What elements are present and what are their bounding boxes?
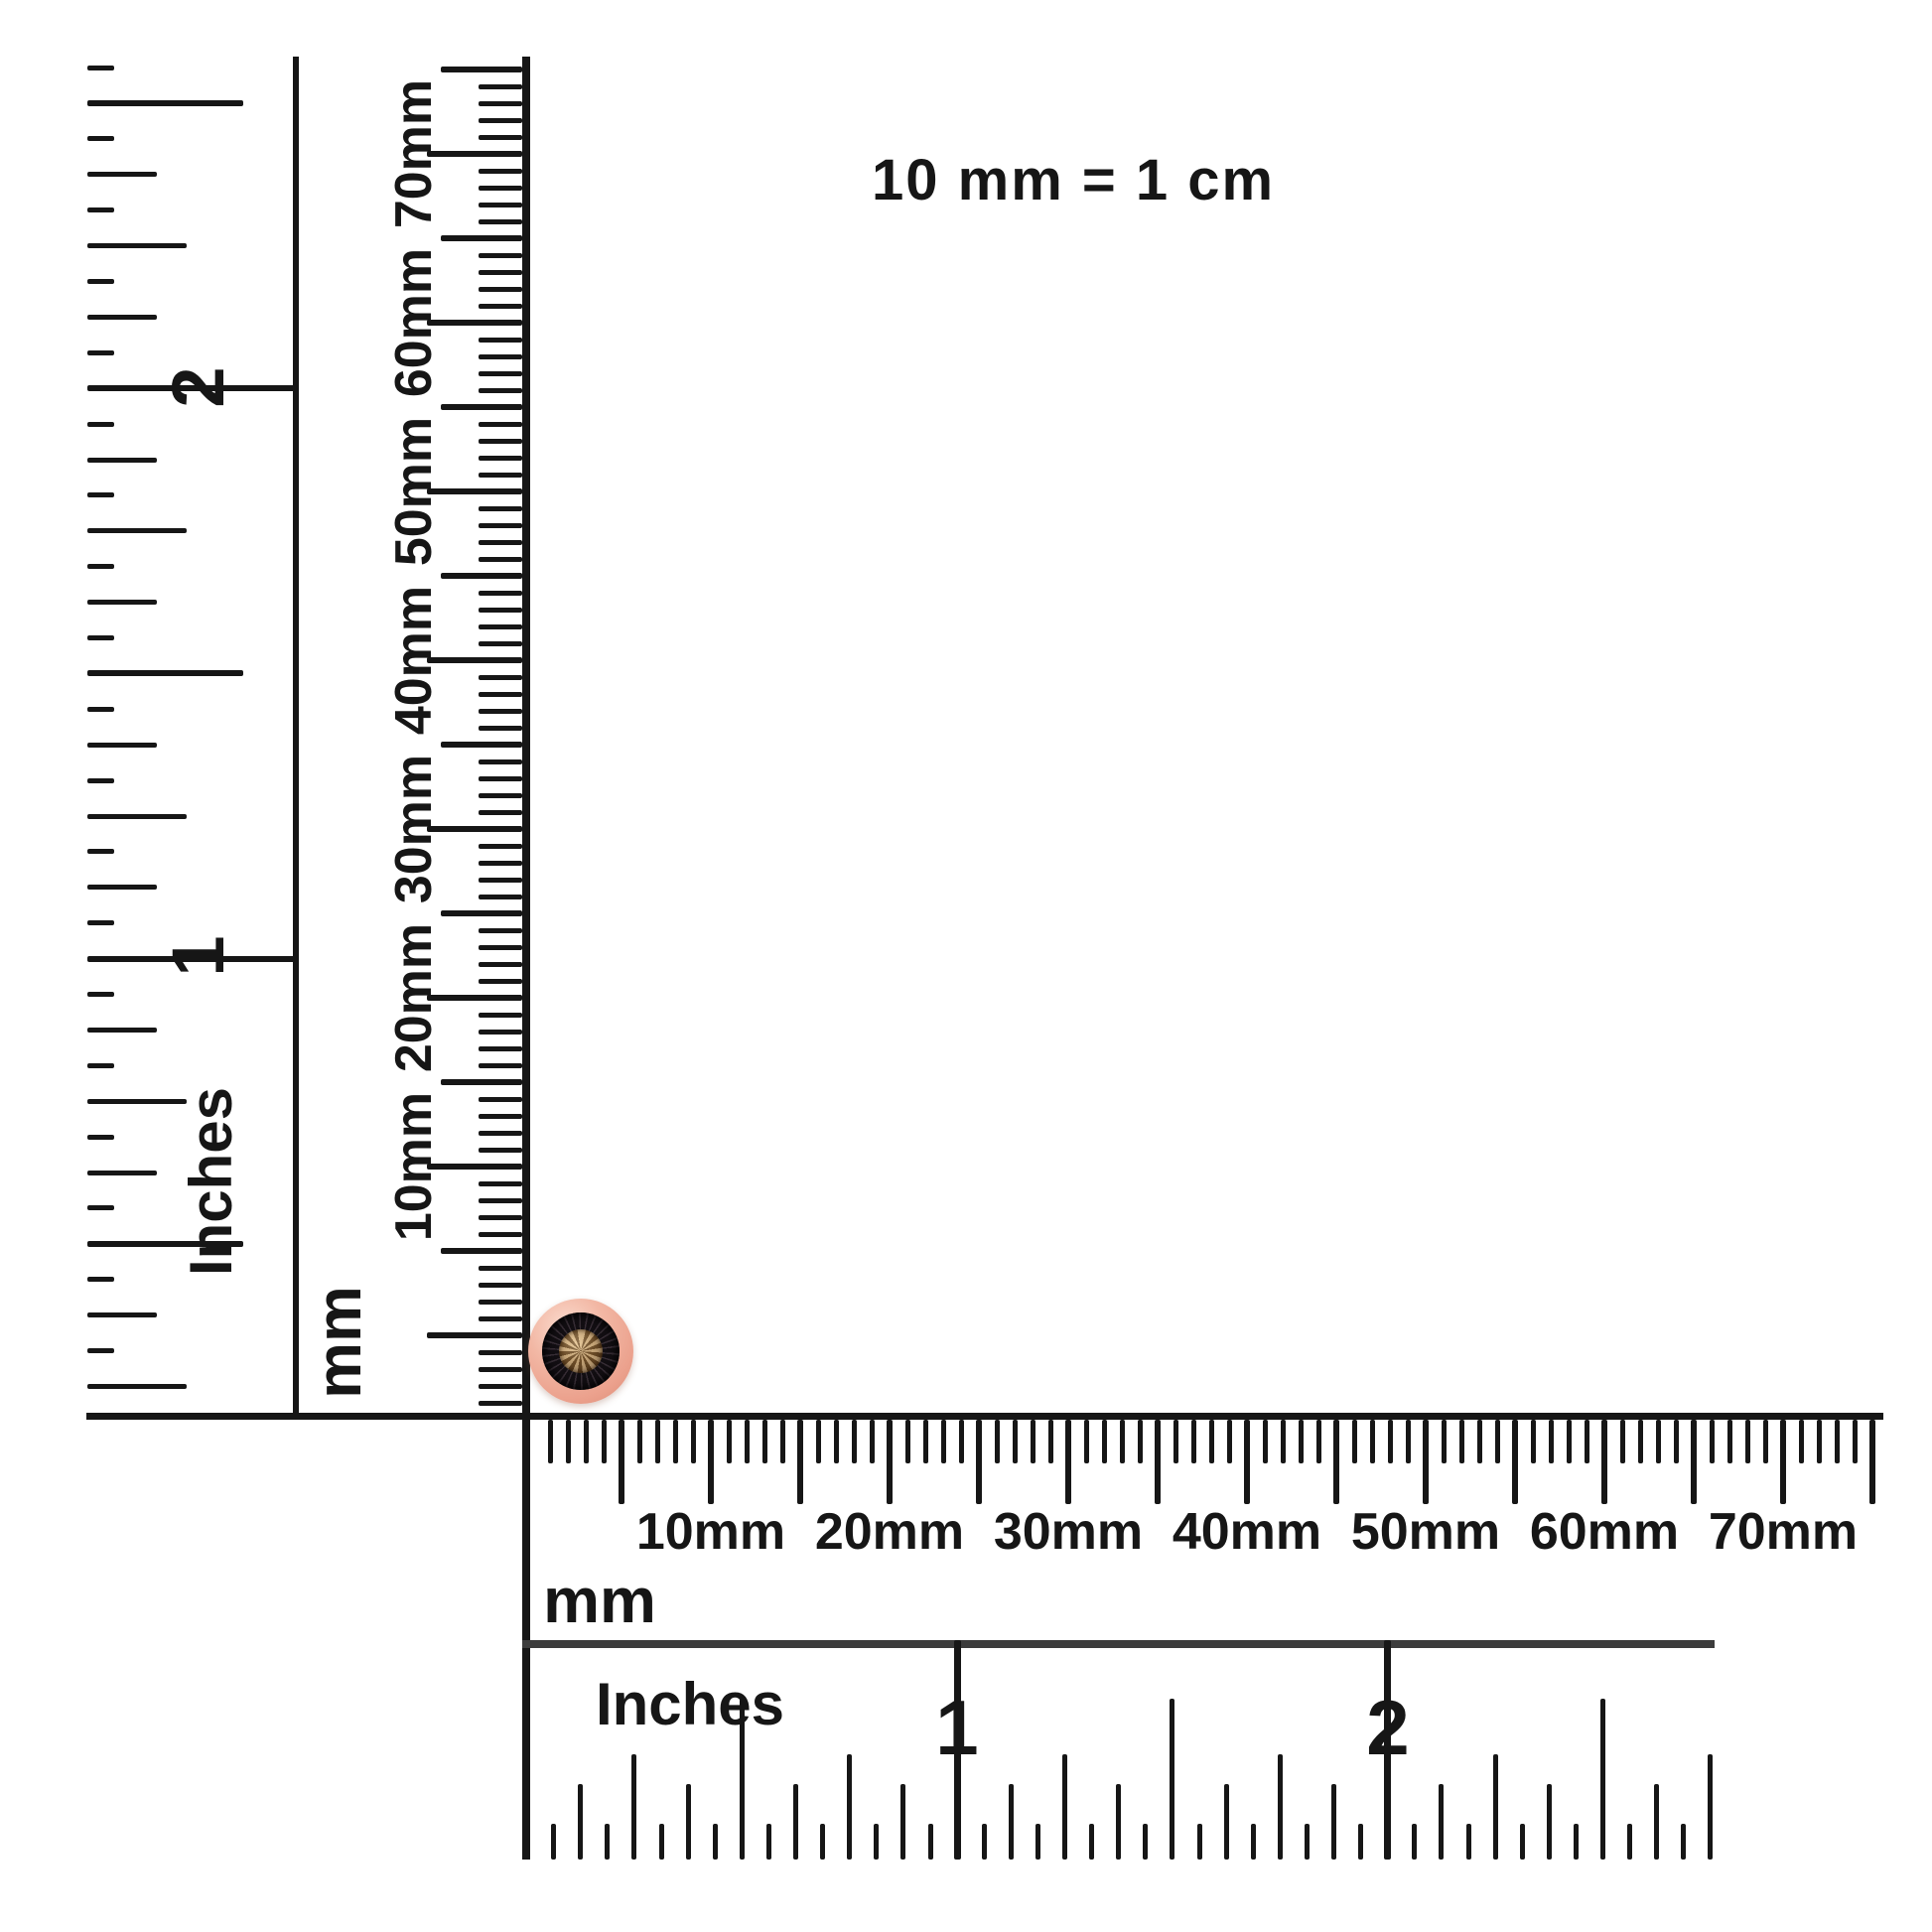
corner-baseline <box>86 1413 1883 1420</box>
tick <box>905 1420 910 1463</box>
tick <box>87 849 114 854</box>
tick <box>479 169 522 174</box>
tick <box>87 243 187 248</box>
tick <box>479 287 522 292</box>
tick <box>87 1384 187 1389</box>
tick <box>762 1420 767 1463</box>
tick <box>602 1420 607 1463</box>
tick <box>834 1420 839 1463</box>
tick <box>479 304 522 309</box>
tick <box>793 1784 798 1860</box>
tick <box>87 207 114 212</box>
tick <box>87 1277 114 1282</box>
tick <box>1013 1420 1018 1463</box>
tick <box>87 1063 114 1068</box>
tick <box>1406 1420 1411 1463</box>
tick <box>1708 1754 1713 1860</box>
tick <box>1585 1420 1589 1463</box>
tick <box>87 492 114 497</box>
tick <box>87 279 114 284</box>
tick <box>1065 1420 1071 1504</box>
tick <box>655 1420 660 1463</box>
tick <box>1466 1824 1471 1860</box>
tick <box>820 1824 825 1860</box>
tick <box>1520 1824 1525 1860</box>
tick <box>1817 1420 1822 1463</box>
tick <box>1439 1784 1444 1860</box>
tick <box>441 235 522 241</box>
tick <box>1412 1824 1417 1860</box>
tick <box>1710 1420 1715 1463</box>
tick <box>1263 1420 1268 1463</box>
tick <box>1102 1420 1107 1463</box>
tick <box>87 528 187 533</box>
tick <box>1727 1420 1732 1463</box>
tick <box>551 1824 556 1860</box>
tick <box>995 1420 1000 1463</box>
tick <box>1048 1420 1053 1463</box>
left-mm-major-label: 40mm <box>388 586 440 735</box>
tick <box>441 67 522 72</box>
tick <box>1654 1784 1659 1860</box>
tick <box>87 1028 157 1033</box>
tick <box>479 371 522 376</box>
tick <box>479 506 522 511</box>
left-mm-major-label: 30mm <box>388 755 440 903</box>
scale-note-text: 10 mm = 1 cm <box>872 147 1275 213</box>
tick <box>479 1131 522 1136</box>
tick <box>87 600 157 605</box>
tick <box>847 1754 852 1860</box>
tick <box>1227 1420 1232 1463</box>
tick <box>479 523 522 528</box>
tick <box>479 1114 522 1119</box>
tick <box>479 186 522 191</box>
tick <box>982 1824 987 1860</box>
tick <box>87 315 157 320</box>
tick <box>780 1420 785 1463</box>
left-mm-unit-label: mm <box>307 1286 370 1399</box>
tick <box>1244 1420 1250 1504</box>
tick <box>1691 1420 1697 1504</box>
tick <box>479 591 522 596</box>
champagne-diamond <box>559 1329 603 1373</box>
tick <box>479 793 522 798</box>
tick <box>1331 1784 1336 1860</box>
tick <box>887 1420 893 1504</box>
tick <box>1352 1420 1357 1463</box>
tick <box>479 624 522 629</box>
tick <box>87 885 157 890</box>
tick <box>479 861 522 866</box>
tick <box>479 219 522 224</box>
tick <box>1316 1420 1321 1463</box>
left-inches-major-label: 1 <box>162 935 235 976</box>
tick <box>1442 1420 1447 1463</box>
tick <box>87 66 114 70</box>
tick <box>441 742 522 748</box>
tick <box>566 1420 571 1463</box>
left-mm-major-label: 10mm <box>388 1092 440 1241</box>
tick <box>874 1824 879 1860</box>
tick <box>548 1420 553 1463</box>
tick <box>479 270 522 275</box>
tick <box>479 962 522 967</box>
tick <box>479 1384 522 1389</box>
tick <box>87 100 243 106</box>
tick <box>1197 1824 1202 1860</box>
tick <box>87 814 187 819</box>
tick <box>659 1824 664 1860</box>
tick <box>686 1784 691 1860</box>
tick <box>479 1046 522 1051</box>
tick <box>479 1401 522 1406</box>
tick <box>479 675 522 680</box>
tick <box>727 1420 732 1463</box>
tick <box>87 1312 157 1317</box>
tick <box>479 1215 522 1220</box>
tick <box>479 1350 522 1355</box>
tick <box>427 1332 522 1338</box>
tick <box>1120 1420 1125 1463</box>
tick <box>1423 1420 1429 1504</box>
bottom-mm-major-label: 60mm <box>1530 1506 1679 1558</box>
tick <box>1638 1420 1643 1463</box>
tick <box>870 1420 875 1463</box>
tick <box>637 1420 642 1463</box>
tick <box>479 641 522 646</box>
tick <box>1869 1420 1875 1504</box>
tick <box>1370 1420 1375 1463</box>
tick <box>691 1420 696 1463</box>
tick <box>1531 1420 1536 1463</box>
vertical-mm-ruler-edge-line <box>522 57 530 1860</box>
tick <box>479 810 522 815</box>
tick <box>1170 1699 1174 1860</box>
tick <box>1143 1824 1148 1860</box>
tick <box>959 1420 964 1463</box>
tick <box>87 670 243 676</box>
tick <box>1567 1420 1572 1463</box>
tick <box>479 1063 522 1068</box>
bottom-inches-major-label: 2 <box>1366 1689 1409 1766</box>
bottom-inches-unit-label: Inches <box>596 1675 784 1734</box>
tick <box>479 945 522 950</box>
tick <box>479 203 522 207</box>
tick <box>1035 1824 1040 1860</box>
tick <box>479 608 522 613</box>
tick <box>584 1420 589 1463</box>
tick <box>87 743 157 748</box>
tick <box>479 759 522 764</box>
tick <box>87 1099 187 1104</box>
tick <box>1388 1420 1393 1463</box>
tick <box>479 1367 522 1372</box>
tick <box>1674 1420 1679 1463</box>
tick <box>87 920 114 925</box>
bottom-mm-major-label: 70mm <box>1709 1506 1858 1558</box>
left-mm-major-label: 70mm <box>388 79 440 228</box>
tick <box>441 1248 522 1254</box>
tick <box>479 1013 522 1018</box>
tick <box>1656 1420 1661 1463</box>
tick <box>479 709 522 714</box>
tick <box>479 253 522 258</box>
tick <box>1089 1824 1094 1860</box>
tick <box>1009 1784 1014 1860</box>
bottom-inches-ruler-top-line <box>522 1640 1715 1648</box>
tick <box>479 422 522 427</box>
tick <box>441 404 522 410</box>
tick <box>1512 1420 1518 1504</box>
tick <box>941 1420 946 1463</box>
tick <box>1763 1420 1768 1463</box>
tick <box>87 992 114 997</box>
tick <box>900 1784 905 1860</box>
tick <box>87 458 157 463</box>
tick <box>816 1420 821 1463</box>
tick <box>976 1420 982 1504</box>
tick <box>797 1420 803 1504</box>
tick <box>1224 1784 1229 1860</box>
tick <box>631 1754 636 1860</box>
tick <box>1799 1420 1804 1463</box>
tick <box>1780 1420 1786 1504</box>
tick <box>479 354 522 359</box>
tick <box>479 1148 522 1153</box>
tick <box>1031 1420 1035 1463</box>
tick <box>1495 1420 1500 1463</box>
tick <box>766 1824 771 1860</box>
tick <box>479 557 522 562</box>
tick <box>479 878 522 883</box>
tick <box>87 172 157 177</box>
tick <box>479 1316 522 1321</box>
tick <box>1493 1754 1498 1860</box>
tick <box>1745 1420 1750 1463</box>
tick <box>479 540 522 545</box>
tick <box>852 1420 857 1463</box>
tick <box>479 118 522 123</box>
bottom-mm-major-label: 40mm <box>1173 1506 1321 1558</box>
tick <box>1299 1420 1304 1463</box>
left-inches-major-label: 2 <box>162 366 235 407</box>
tick <box>479 1300 522 1305</box>
bottom-mm-unit-label: mm <box>543 1569 656 1632</box>
bottom-mm-major-label: 10mm <box>636 1506 785 1558</box>
bottom-mm-major-label: 30mm <box>994 1506 1143 1558</box>
tick <box>87 1135 114 1140</box>
bottom-mm-major-label: 50mm <box>1351 1506 1500 1558</box>
tick <box>479 388 522 393</box>
tick <box>441 910 522 916</box>
tick <box>479 1266 522 1271</box>
tick <box>87 350 114 355</box>
tick <box>479 1181 522 1186</box>
tick <box>1062 1754 1067 1860</box>
tick <box>479 895 522 899</box>
left-inches-ruler-edge-line <box>293 57 299 1416</box>
tick <box>1835 1420 1840 1463</box>
measurement-scale-image: 10 mm = 1 cm 21 70mm60mm50mm40mm30mm20mm… <box>0 0 1932 1932</box>
tick <box>1209 1420 1214 1463</box>
left-mm-major-label: 60mm <box>388 248 440 397</box>
tick <box>87 778 114 783</box>
tick <box>1251 1824 1256 1860</box>
tick <box>479 1232 522 1237</box>
left-mm-major-label: 20mm <box>388 923 440 1072</box>
tick <box>1574 1824 1579 1860</box>
tick <box>1116 1784 1121 1860</box>
tick <box>479 979 522 984</box>
tick <box>479 692 522 697</box>
tick <box>1549 1420 1554 1463</box>
tick <box>479 928 522 933</box>
tick <box>87 136 114 141</box>
tick <box>578 1784 583 1860</box>
tick <box>87 707 114 712</box>
left-inches-unit-label: Inches <box>182 1087 241 1276</box>
tick <box>1600 1699 1605 1860</box>
tick <box>479 1283 522 1288</box>
tick <box>479 338 522 343</box>
tick <box>479 726 522 731</box>
tick <box>1138 1420 1143 1463</box>
tick <box>1305 1824 1310 1860</box>
tick <box>708 1420 714 1504</box>
tick <box>673 1420 678 1463</box>
tick <box>1084 1420 1089 1463</box>
tick <box>87 1171 157 1175</box>
tick <box>1333 1420 1339 1504</box>
tick <box>87 422 114 427</box>
tick <box>745 1420 750 1463</box>
tick <box>479 135 522 140</box>
tick <box>1620 1420 1625 1463</box>
tick <box>479 84 522 89</box>
tick <box>1281 1420 1286 1463</box>
tick <box>1173 1420 1178 1463</box>
tick <box>1853 1420 1858 1463</box>
tick <box>1601 1420 1607 1504</box>
left-mm-major-label: 50mm <box>388 417 440 566</box>
tick <box>479 844 522 849</box>
tick <box>479 473 522 478</box>
tick <box>1477 1420 1482 1463</box>
tick <box>1358 1824 1363 1860</box>
tick <box>479 1198 522 1203</box>
tick <box>87 1348 114 1353</box>
tick <box>713 1824 718 1860</box>
tick <box>605 1824 610 1860</box>
tick <box>1459 1420 1464 1463</box>
bottom-inches-major-label: 1 <box>935 1689 978 1766</box>
tick <box>87 635 114 640</box>
tick <box>87 564 114 569</box>
tick <box>87 1205 114 1210</box>
tick <box>479 456 522 461</box>
tick <box>479 439 522 444</box>
tick <box>479 1097 522 1102</box>
tick <box>1681 1824 1686 1860</box>
tick <box>1155 1420 1161 1504</box>
tick <box>1547 1784 1552 1860</box>
tick <box>928 1824 933 1860</box>
tick <box>441 1079 522 1085</box>
bottom-mm-major-label: 20mm <box>815 1506 964 1558</box>
stud-earring-product <box>528 1299 633 1404</box>
tick <box>1278 1754 1283 1860</box>
tick <box>479 101 522 106</box>
tick <box>479 776 522 781</box>
tick <box>619 1420 624 1504</box>
tick <box>441 573 522 579</box>
tick <box>1627 1824 1632 1860</box>
tick <box>923 1420 928 1463</box>
tick <box>479 1030 522 1035</box>
tick <box>1191 1420 1196 1463</box>
